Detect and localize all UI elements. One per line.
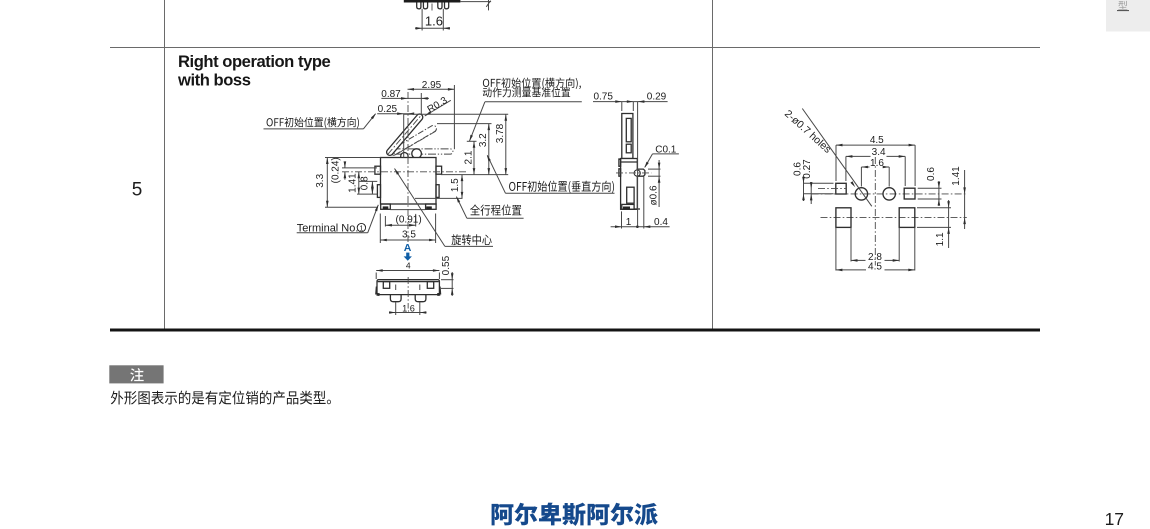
svg-text:1.6: 1.6 <box>870 158 884 169</box>
svg-text:2.95: 2.95 <box>422 80 442 91</box>
svg-text:0.55: 0.55 <box>441 255 452 275</box>
svg-text:3.4: 3.4 <box>872 147 886 158</box>
svg-text:0.27: 0.27 <box>802 159 813 179</box>
svg-text:4.5: 4.5 <box>870 135 884 146</box>
svg-text:3.78: 3.78 <box>495 123 506 143</box>
svg-text:(0.91): (0.91) <box>396 214 422 225</box>
svg-text:3.2: 3.2 <box>478 133 489 147</box>
svg-text:4: 4 <box>406 260 411 270</box>
svg-text:1.1: 1.1 <box>935 232 946 246</box>
svg-text:3.5: 3.5 <box>402 230 416 241</box>
svg-text:1.6: 1.6 <box>402 303 415 313</box>
svg-text:0.29: 0.29 <box>647 91 667 102</box>
svg-text:5: 5 <box>132 180 143 201</box>
svg-text:0.75: 0.75 <box>593 91 613 102</box>
svg-text:17: 17 <box>1105 509 1124 529</box>
svg-text:ø0.6: ø0.6 <box>648 185 659 205</box>
svg-text:4.5: 4.5 <box>868 262 882 273</box>
svg-text:2.1: 2.1 <box>463 150 474 164</box>
svg-text:1.41: 1.41 <box>951 166 962 186</box>
svg-text:0.87: 0.87 <box>381 89 401 100</box>
svg-text:3.3: 3.3 <box>315 173 326 187</box>
svg-text:1: 1 <box>359 224 363 233</box>
svg-text:0.25: 0.25 <box>378 104 398 115</box>
svg-text:with boss: with boss <box>177 70 251 89</box>
svg-text:Right operation type: Right operation type <box>178 52 331 71</box>
svg-text:0.6: 0.6 <box>926 167 937 181</box>
svg-text:1: 1 <box>626 217 632 228</box>
svg-text:0.4: 0.4 <box>654 217 668 228</box>
svg-text:1.41: 1.41 <box>348 173 359 193</box>
svg-text:2-ø0.7 holes: 2-ø0.7 holes <box>782 108 833 156</box>
svg-text:(0.24): (0.24) <box>331 157 342 183</box>
svg-text:1.5: 1.5 <box>450 178 461 192</box>
svg-text:1.6: 1.6 <box>425 14 443 29</box>
svg-text:A: A <box>404 242 412 254</box>
svg-text:R0.3: R0.3 <box>426 95 450 116</box>
svg-text:0.8: 0.8 <box>359 176 370 190</box>
